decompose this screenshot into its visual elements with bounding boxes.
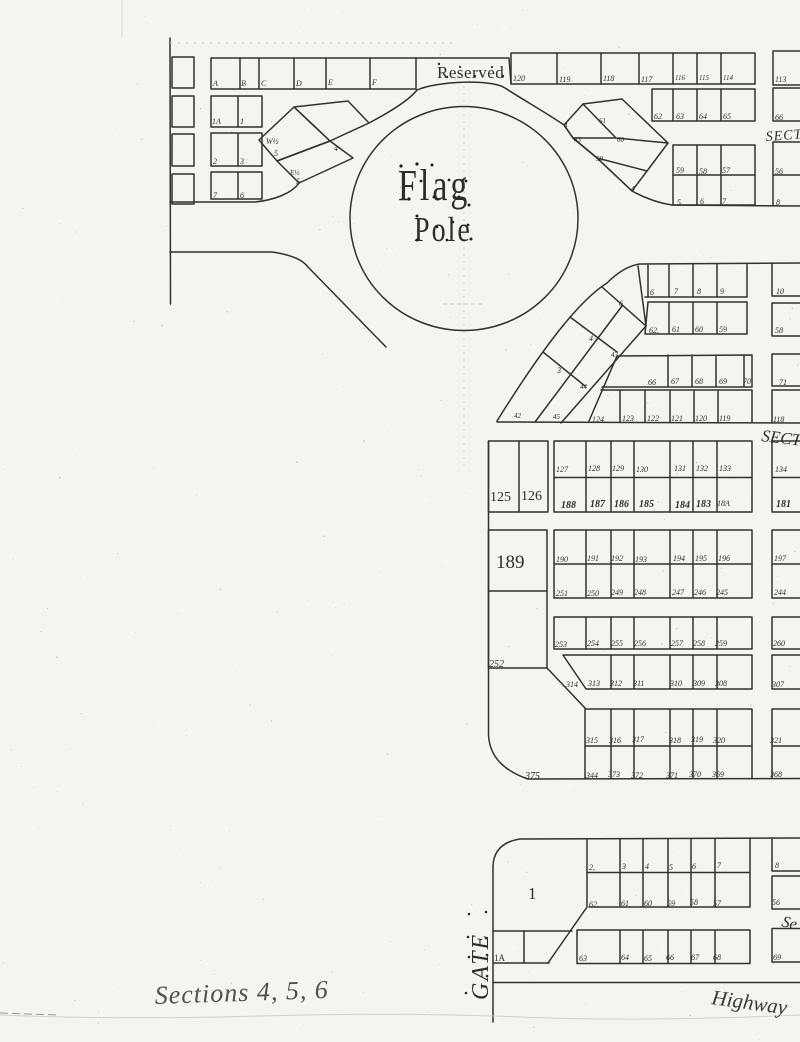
svg-text:6: 6: [650, 288, 654, 297]
svg-text:4: 4: [564, 122, 568, 130]
svg-text:56: 56: [775, 167, 783, 176]
svg-text:68: 68: [713, 953, 721, 962]
svg-text:45: 45: [553, 413, 561, 421]
svg-text:252: 252: [489, 659, 504, 670]
svg-text:5: 5: [669, 863, 673, 872]
svg-text:130: 130: [636, 465, 648, 474]
svg-text:344: 344: [585, 771, 598, 780]
svg-text:254: 254: [587, 639, 599, 648]
svg-text:3: 3: [621, 862, 626, 871]
svg-text:247: 247: [672, 588, 685, 597]
svg-text:123: 123: [622, 414, 634, 423]
svg-text:4: 4: [589, 334, 593, 343]
svg-text:248: 248: [634, 588, 646, 597]
svg-text:42: 42: [514, 412, 522, 420]
svg-text:253: 253: [555, 640, 567, 649]
svg-text:3: 3: [239, 157, 244, 166]
svg-text:250: 250: [587, 589, 599, 598]
svg-text:186: 186: [614, 499, 629, 510]
svg-text:196: 196: [718, 554, 730, 563]
svg-text:371: 371: [665, 771, 678, 780]
svg-text:61: 61: [599, 117, 606, 125]
svg-text:116: 116: [675, 74, 685, 82]
svg-text:5: 5: [677, 198, 681, 207]
svg-text:319: 319: [690, 735, 703, 744]
svg-text:307: 307: [771, 680, 785, 689]
svg-text:2,: 2,: [589, 863, 595, 872]
svg-text:321: 321: [769, 736, 782, 745]
svg-text:320: 320: [712, 736, 725, 745]
svg-text:375: 375: [524, 771, 540, 782]
svg-text:66: 66: [648, 378, 656, 387]
svg-text:124: 124: [592, 415, 604, 424]
svg-text:63: 63: [579, 954, 587, 963]
svg-text:193: 193: [635, 555, 647, 564]
svg-text:126: 126: [521, 489, 542, 504]
svg-text:SECT: SECT: [765, 127, 800, 145]
svg-text:62,: 62,: [649, 326, 659, 335]
svg-text:61: 61: [621, 899, 629, 908]
svg-text:5: 5: [274, 149, 278, 158]
svg-text:311: 311: [632, 679, 644, 688]
svg-text:E: E: [327, 78, 333, 87]
svg-text:71: 71: [779, 378, 787, 387]
svg-text:Pole: Pole: [414, 210, 472, 249]
svg-text:70: 70: [743, 377, 751, 386]
svg-text:57: 57: [713, 899, 722, 908]
svg-text:Flag: Flag: [398, 161, 470, 210]
svg-text:132: 132: [696, 464, 708, 473]
svg-text:43: 43: [611, 351, 619, 359]
svg-text:258: 258: [693, 639, 705, 648]
svg-text:315: 315: [585, 736, 598, 745]
svg-text:56: 56: [772, 898, 780, 907]
svg-text:68: 68: [695, 377, 703, 386]
svg-text:10: 10: [776, 287, 784, 296]
svg-text:6: 6: [700, 197, 704, 206]
svg-text:4: 4: [334, 144, 338, 153]
svg-text:60: 60: [617, 136, 625, 144]
svg-text:372: 372: [630, 771, 643, 780]
svg-text:318: 318: [668, 736, 681, 745]
svg-text:368: 368: [769, 770, 782, 779]
svg-text:43: 43: [574, 136, 582, 144]
svg-text:194: 194: [673, 554, 685, 563]
svg-text:2: 2: [213, 157, 217, 166]
svg-text:58: 58: [775, 326, 783, 335]
svg-text:134: 134: [775, 465, 787, 474]
svg-text:65: 65: [723, 112, 731, 121]
svg-text:66: 66: [666, 953, 674, 962]
svg-text:184: 184: [675, 500, 690, 511]
svg-text:69: 69: [773, 953, 781, 962]
svg-text:314: 314: [565, 680, 578, 689]
svg-text:67: 67: [671, 377, 680, 386]
svg-text:115: 115: [699, 74, 709, 82]
svg-text:D: D: [295, 79, 302, 88]
svg-text:8: 8: [775, 861, 779, 870]
svg-text:251: 251: [556, 589, 568, 598]
svg-text:187: 187: [590, 499, 606, 510]
svg-text:127: 127: [556, 465, 569, 474]
svg-text:58: 58: [690, 898, 698, 907]
svg-text:129: 129: [612, 464, 624, 473]
svg-text:3: 3: [556, 366, 561, 375]
svg-text:188: 188: [561, 500, 576, 511]
svg-text:312: 312: [609, 679, 622, 688]
svg-text:62: 62: [654, 112, 662, 121]
svg-text:181: 181: [776, 499, 791, 510]
svg-text:260: 260: [773, 639, 785, 648]
svg-text:Reserved: Reserved: [437, 63, 504, 82]
svg-text:133: 133: [719, 464, 731, 473]
svg-text:B: B: [241, 79, 246, 88]
svg-text:118: 118: [773, 415, 784, 424]
svg-text:65: 65: [644, 954, 652, 963]
svg-text:246: 246: [694, 588, 706, 597]
svg-text:9: 9: [720, 287, 724, 296]
svg-text:1: 1: [528, 884, 537, 903]
svg-text:183: 183: [696, 499, 711, 510]
svg-text:119: 119: [559, 75, 570, 84]
svg-text:191: 191: [587, 554, 599, 563]
svg-text:66: 66: [775, 113, 783, 122]
svg-text:4: 4: [645, 862, 649, 871]
svg-text:44: 44: [580, 383, 588, 391]
svg-text:Sections 4, 5, 6: Sections 4, 5, 6: [154, 975, 329, 1010]
svg-text:W½: W½: [266, 137, 279, 146]
svg-text:62,: 62,: [589, 900, 599, 909]
svg-text:249: 249: [611, 588, 623, 597]
svg-text:8: 8: [776, 198, 780, 207]
svg-text:122: 122: [647, 414, 659, 423]
svg-text:120: 120: [695, 414, 707, 423]
svg-text:63: 63: [676, 112, 684, 121]
svg-text:6: 6: [692, 862, 696, 871]
svg-text:60: 60: [695, 325, 703, 334]
svg-text:64: 64: [699, 112, 707, 121]
svg-text:125: 125: [490, 490, 511, 505]
svg-text:8: 8: [697, 287, 701, 296]
svg-text:244: 244: [774, 588, 786, 597]
svg-text:GATE: GATE: [468, 933, 494, 1000]
svg-text:120: 120: [513, 74, 525, 83]
svg-text:192: 192: [611, 554, 623, 563]
svg-text:256: 256: [634, 639, 646, 648]
svg-text:117: 117: [641, 75, 653, 84]
svg-text:189: 189: [496, 552, 525, 573]
svg-text:6: 6: [619, 299, 623, 308]
svg-text:1A: 1A: [212, 117, 221, 126]
svg-text:131: 131: [674, 464, 686, 473]
svg-text:197: 197: [774, 554, 787, 563]
svg-text:1A: 1A: [494, 953, 506, 963]
svg-text:121: 121: [671, 414, 683, 423]
svg-text:64: 64: [621, 953, 629, 962]
svg-text:255: 255: [611, 639, 623, 648]
svg-text:F: F: [371, 78, 377, 87]
svg-text:309: 309: [692, 679, 705, 688]
svg-text:259: 259: [715, 639, 727, 648]
svg-text:59: 59: [667, 899, 675, 908]
svg-text:369: 369: [711, 770, 724, 779]
svg-text:4: 4: [631, 185, 635, 193]
svg-text:308: 308: [714, 679, 727, 688]
svg-text:58: 58: [699, 167, 707, 176]
svg-text:59: 59: [719, 325, 727, 334]
svg-text:69: 69: [719, 377, 727, 386]
svg-text:18A: 18A: [717, 499, 730, 508]
svg-text:67: 67: [691, 953, 700, 962]
svg-text:128: 128: [588, 464, 600, 473]
svg-text:190: 190: [556, 555, 568, 564]
svg-text:195: 195: [695, 554, 707, 563]
svg-text:113: 113: [775, 75, 786, 84]
svg-text:E½: E½: [289, 169, 300, 177]
svg-text:1: 1: [240, 117, 244, 126]
svg-text:317: 317: [631, 735, 645, 744]
svg-text:60: 60: [644, 899, 652, 908]
svg-text:373: 373: [607, 770, 620, 779]
svg-text:61: 61: [672, 325, 680, 334]
svg-text:118: 118: [603, 74, 614, 83]
svg-text:119: 119: [719, 414, 730, 423]
svg-text:245: 245: [716, 588, 728, 597]
svg-text:59: 59: [596, 155, 604, 163]
svg-text:59: 59: [676, 166, 684, 175]
svg-text:316: 316: [608, 736, 621, 745]
svg-text:313: 313: [587, 679, 600, 688]
svg-text:5: 5: [296, 177, 300, 186]
svg-text:185: 185: [639, 499, 654, 510]
svg-text:57: 57: [722, 166, 731, 175]
svg-text:370: 370: [688, 770, 701, 779]
svg-text:6: 6: [240, 191, 244, 200]
svg-text:A: A: [212, 79, 218, 88]
svg-text:C: C: [261, 79, 267, 88]
svg-text:257: 257: [671, 639, 684, 648]
svg-text:310: 310: [669, 679, 682, 688]
svg-text:114: 114: [723, 74, 733, 82]
